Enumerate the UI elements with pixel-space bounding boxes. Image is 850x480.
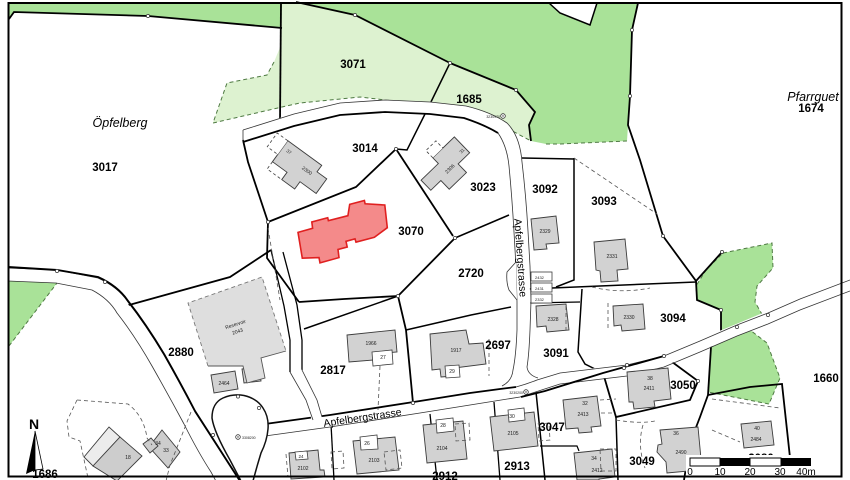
svg-text:3049: 3049	[629, 456, 655, 468]
svg-text:2329: 2329	[539, 229, 550, 235]
svg-text:Öpfelberg: Öpfelberg	[93, 116, 148, 130]
svg-text:2331: 2331	[606, 254, 617, 260]
svg-text:3047: 3047	[539, 422, 565, 434]
svg-text:1685: 1685	[456, 94, 482, 106]
svg-text:33: 33	[163, 448, 169, 454]
svg-text:30: 30	[509, 414, 515, 420]
svg-text:1966: 1966	[365, 341, 376, 347]
svg-text:36: 36	[673, 431, 679, 437]
svg-text:2817: 2817	[320, 365, 346, 377]
svg-text:2102: 2102	[297, 466, 308, 472]
svg-text:2464: 2464	[218, 381, 229, 387]
svg-text:34: 34	[155, 441, 161, 447]
svg-text:2432: 2432	[535, 275, 545, 280]
svg-text:3091: 3091	[543, 348, 569, 360]
svg-text:2490: 2490	[675, 450, 686, 456]
svg-text:27: 27	[380, 355, 386, 361]
svg-text:2431: 2431	[535, 286, 545, 291]
svg-text:2720: 2720	[458, 268, 484, 280]
svg-text:32: 32	[582, 401, 588, 407]
svg-text:1660: 1660	[813, 373, 839, 385]
svg-text:2412: 2412	[591, 468, 602, 474]
svg-text:40: 40	[754, 426, 760, 432]
svg-text:2411: 2411	[644, 386, 655, 392]
svg-text:1917: 1917	[450, 348, 461, 354]
svg-text:2697: 2697	[485, 340, 511, 352]
svg-text:26: 26	[364, 441, 370, 447]
svg-text:3092: 3092	[532, 184, 558, 196]
svg-text:24: 24	[298, 454, 304, 459]
svg-text:3230970: 3230970	[486, 115, 500, 119]
svg-text:2332: 2332	[535, 297, 545, 302]
svg-text:1674: 1674	[798, 103, 824, 115]
svg-text:2880: 2880	[168, 347, 194, 359]
svg-text:34: 34	[591, 456, 597, 462]
svg-text:2328: 2328	[547, 317, 558, 323]
svg-text:3014: 3014	[352, 143, 378, 155]
svg-text:29: 29	[449, 369, 455, 375]
svg-text:28: 28	[440, 423, 446, 429]
svg-text:3017: 3017	[92, 162, 118, 174]
svg-text:3093: 3093	[591, 196, 617, 208]
svg-text:2913: 2913	[504, 461, 530, 473]
svg-text:2484: 2484	[750, 437, 761, 443]
svg-text:2330: 2330	[623, 315, 634, 321]
svg-text:2105: 2105	[507, 431, 518, 437]
svg-text:N: N	[29, 416, 39, 432]
svg-text:38: 38	[647, 376, 653, 382]
svg-text:1686: 1686	[32, 469, 58, 480]
svg-text:2103: 2103	[368, 458, 379, 464]
svg-text:2104: 2104	[436, 446, 447, 452]
svg-text:2413: 2413	[577, 412, 588, 418]
svg-text:3071: 3071	[340, 59, 366, 71]
svg-text:3308200: 3308200	[242, 436, 256, 440]
svg-text:18: 18	[125, 455, 131, 461]
svg-text:3050: 3050	[670, 380, 696, 392]
svg-text:3023: 3023	[470, 182, 496, 194]
svg-text:3094: 3094	[660, 313, 686, 325]
svg-text:Pfarrguet: Pfarrguet	[787, 90, 839, 104]
svg-text:3230200: 3230200	[509, 391, 523, 395]
svg-text:3070: 3070	[398, 226, 424, 238]
